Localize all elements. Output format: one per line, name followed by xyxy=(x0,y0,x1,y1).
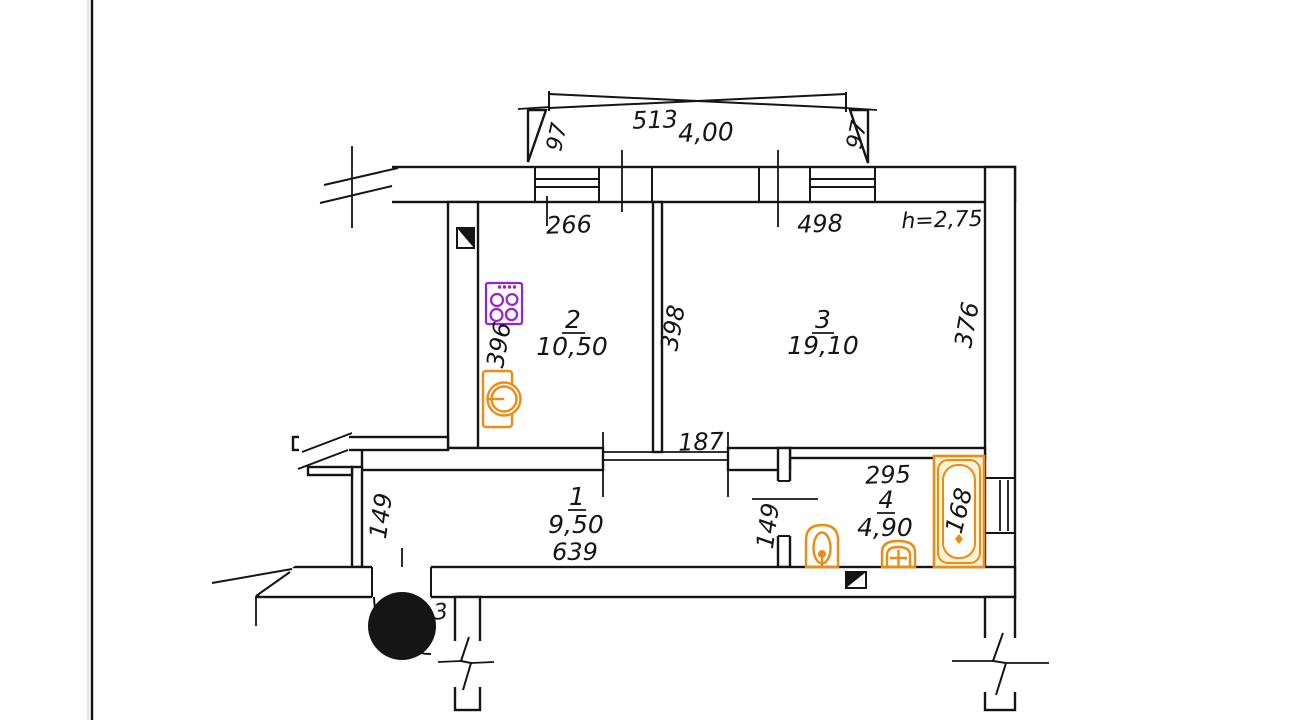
hall-west-wall xyxy=(352,467,362,567)
label-room3-area: 19,10 xyxy=(787,331,859,360)
floor-plan-page: 513 4,00 97 97 266 498 h=2,75 396 398 37… xyxy=(0,0,1295,720)
corridor-stub-wall-2 xyxy=(308,467,352,475)
label-kitchen-width: 266 xyxy=(546,210,593,240)
vent-duct-icon xyxy=(846,572,866,588)
label-hall-number: 1 xyxy=(569,482,585,511)
hall-north-wall-left xyxy=(362,448,603,470)
label-balcony-width: 513 xyxy=(632,105,679,135)
label-room3-number: 3 xyxy=(815,305,831,334)
label-kitchen-number: 2 xyxy=(565,305,581,334)
label-kitchen-area: 10,50 xyxy=(536,332,608,361)
label-ceiling-height: h=2,75 xyxy=(901,207,983,235)
label-entrance-partial-digit: 3 xyxy=(433,599,450,625)
redaction-dot xyxy=(368,592,436,660)
top-exterior-wall xyxy=(340,167,1015,202)
floor-plan-canvas: 513 4,00 97 97 266 498 h=2,75 396 398 37… xyxy=(0,0,1295,720)
label-room3-door-width: 187 xyxy=(678,427,725,457)
label-hall-area: 9,50 xyxy=(548,510,604,539)
vent-duct-icon xyxy=(457,228,474,248)
label-bath-area: 4,90 xyxy=(857,513,913,542)
label-room3-width: 498 xyxy=(797,209,844,239)
label-hall-width: 639 xyxy=(552,538,598,566)
label-balcony-area: 4,00 xyxy=(678,117,735,148)
label-bath-number: 4 xyxy=(878,486,893,514)
